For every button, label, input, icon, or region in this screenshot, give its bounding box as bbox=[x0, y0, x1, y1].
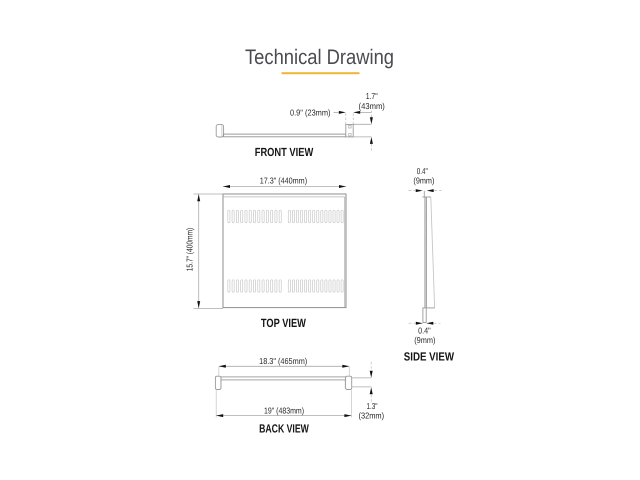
svg-text:15.7" (400mm): 15.7" (400mm) bbox=[185, 228, 195, 272]
svg-text:(9mm): (9mm) bbox=[414, 335, 435, 345]
svg-text:1.3": 1.3" bbox=[366, 401, 377, 411]
svg-text:17.3" (440mm): 17.3" (440mm) bbox=[260, 176, 308, 186]
svg-text:19" (483mm): 19" (483mm) bbox=[264, 405, 304, 415]
svg-text:0.4": 0.4" bbox=[417, 166, 428, 176]
svg-text:SIDE VIEW: SIDE VIEW bbox=[404, 350, 455, 364]
svg-text:TOP VIEW: TOP VIEW bbox=[261, 316, 307, 330]
svg-text:FRONT VIEW: FRONT VIEW bbox=[255, 145, 314, 159]
svg-text:(9mm): (9mm) bbox=[413, 176, 434, 186]
svg-text:1.7": 1.7" bbox=[366, 91, 378, 101]
svg-text:0.4": 0.4" bbox=[418, 326, 431, 336]
svg-text:Technical Drawing: Technical Drawing bbox=[245, 46, 394, 69]
svg-text:BACK VIEW: BACK VIEW bbox=[259, 422, 309, 436]
svg-text:(43mm): (43mm) bbox=[359, 101, 385, 111]
svg-text:18.3" (465mm): 18.3" (465mm) bbox=[259, 356, 307, 366]
svg-text:0.9" (23mm): 0.9" (23mm) bbox=[290, 107, 331, 117]
svg-text:(32mm): (32mm) bbox=[359, 411, 385, 421]
